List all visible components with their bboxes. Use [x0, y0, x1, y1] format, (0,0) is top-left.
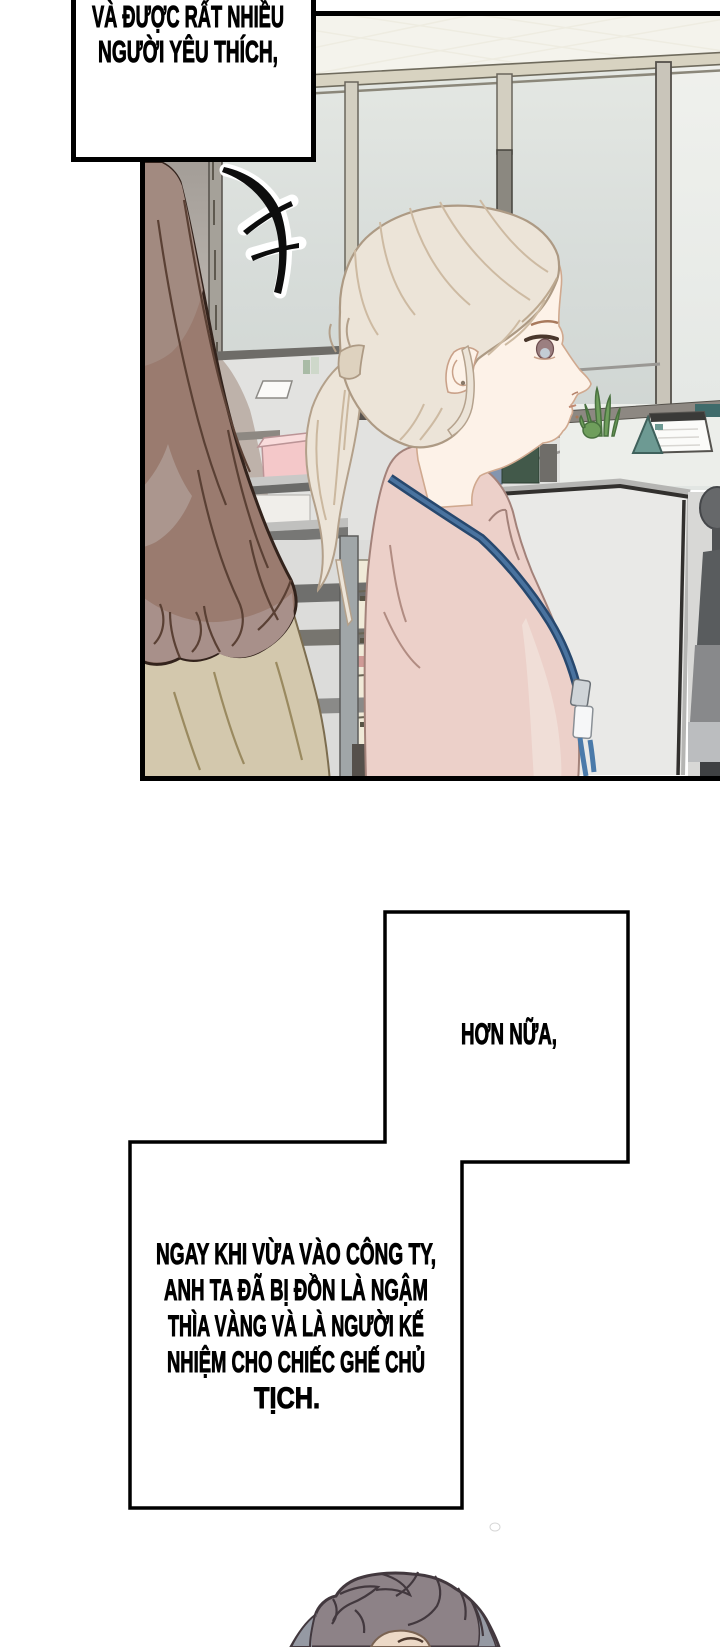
svg-text:TỊCH.: TỊCH. [254, 1382, 320, 1415]
svg-text:NGƯỜI YÊU THÍCH,: NGƯỜI YÊU THÍCH, [98, 33, 278, 69]
svg-text:VÀ ĐƯỢC RẤT NHIỀU: VÀ ĐƯỢC RẤT NHIỀU [92, 0, 284, 34]
svg-text:HƠN NỮA,: HƠN NỮA, [461, 1017, 557, 1051]
svg-text:THÌA VÀNG VÀ LÀ NGƯỜI KẾ: THÌA VÀNG VÀ LÀ NGƯỜI KẾ [168, 1309, 424, 1343]
svg-text:NHIỆM CHO CHIẾC GHẾ CHỦ: NHIỆM CHO CHIẾC GHẾ CHỦ [167, 1345, 425, 1379]
svg-text:ANH TA ĐÃ BỊ ĐỒN LÀ NGẬM: ANH TA ĐÃ BỊ ĐỒN LÀ NGẬM [164, 1273, 428, 1307]
svg-text:NGAY KHI VỪA VÀO CÔNG TY,: NGAY KHI VỪA VÀO CÔNG TY, [156, 1237, 436, 1271]
